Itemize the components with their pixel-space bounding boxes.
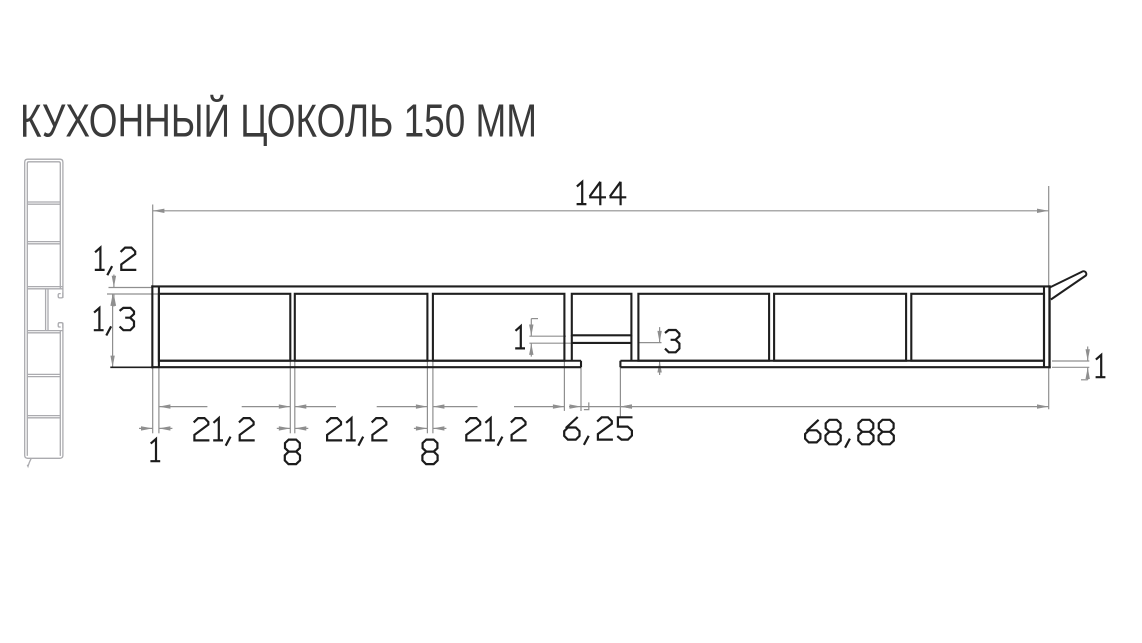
svg-text:КУХОННЫЙ ЦОКОЛЬ 150 ММ: КУХОННЫЙ ЦОКОЛЬ 150 ММ [20, 95, 537, 147]
